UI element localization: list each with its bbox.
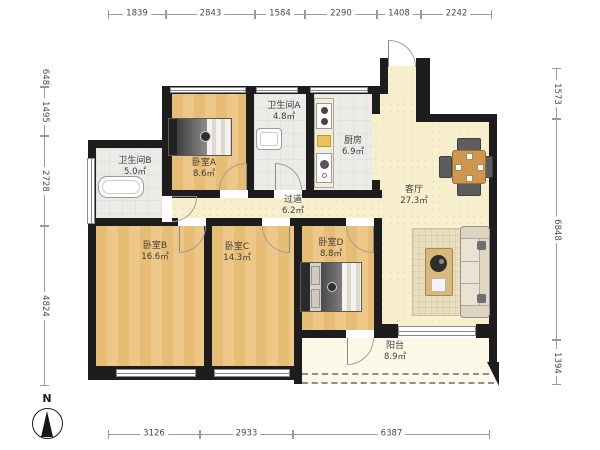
bedroom-d-door-gap [346,218,374,226]
window-bathroom-b [87,158,95,224]
bedroom-c-door-leaf [289,226,290,253]
living-room-floor-west [380,94,416,122]
burner [321,118,328,125]
entry-vestibule-floor [388,66,416,94]
dining-chair-south [457,183,481,196]
stove-icon [316,103,332,129]
bedroom-d-door-leaf [373,226,374,253]
balcony-door-gap [346,330,374,338]
bed-headboard [301,263,310,311]
wall-bedroom-b-c [204,226,212,368]
sofa-seat-line [461,261,479,262]
room-label-bedroom-b: 卧室B 16.6㎡ [141,241,168,262]
plate [455,164,462,171]
bathroom-b-tub [98,176,144,198]
bed-headboard [169,119,177,155]
dim-top-4: 1408 [377,14,421,15]
kitchen-opening-floor [372,114,380,180]
bathroom-a-basin [256,128,282,150]
plant-highlight [439,259,444,264]
kitchen-counter [314,98,334,188]
sofa-seat-line [461,283,479,284]
balcony-dashed-edge-inner [302,373,489,375]
window-bedroom-c [214,369,290,377]
bedroom-c-door-gap [262,218,290,226]
tray-icon [431,278,446,292]
window-balcony-slider [398,326,476,336]
coffee-table [425,248,453,296]
room-label-hallway: 过道 6.2㎡ [282,195,304,216]
window-kitchen [310,87,368,93]
room-label-bathroom-b: 卫生间B 5.0㎡ [118,156,151,177]
plant-icon [430,255,447,272]
dining-chair-west [439,156,452,178]
dim-right-1: 6848 [556,119,557,340]
dim-top-3: 2290 [305,14,377,15]
wall-bedroom-a-bathroom-a [246,86,254,198]
sink-icon [316,153,332,183]
plate [477,164,484,171]
dim-bottom-1: 2933 [200,434,293,435]
wall-bathroom-b-top [88,140,170,148]
bed-pillow [311,266,320,285]
floor-plan: 卫生间B 5.0㎡ 卧室A 8.6㎡ 卫生间A 4.8㎡ 厨房 6.9㎡ 过道 … [0,0,600,450]
wall-bathroom-a-kitchen [306,86,314,198]
room-label-bedroom-a: 卧室A 8.6㎡ [192,158,216,179]
compass: N [24,392,70,446]
dim-top-1: 2843 [166,14,255,15]
bed-sheet [342,263,361,311]
wall-vestibule-right [416,58,430,122]
dim-left-0: 648 [44,66,45,87]
sink-bowl [320,160,329,169]
bed-pillow [311,289,320,308]
wall-balcony-pier-west [374,324,398,338]
counter-item [317,135,331,147]
compass-north-label: N [24,392,70,405]
dim-left-1: 1495 [44,87,45,136]
basin-inner [260,132,278,146]
window-bathroom-a [256,87,298,93]
plate [466,175,473,182]
wall-vestibule-left [380,58,388,94]
dim-top-2: 1584 [255,14,305,15]
wall-hallway-bottom [88,218,382,226]
bathroom-b-door-gap [162,196,172,222]
wall-bedroom-d-east [374,218,382,338]
window-bedroom-a [170,87,246,93]
room-label-bedroom-d: 卧室D 8.8㎡ [319,238,344,259]
bedroom-a-bed [168,118,232,156]
dim-right-2: 1394 [556,340,557,385]
sofa-pillow [477,294,486,303]
sofa-pillow [477,241,486,250]
room-label-bathroom-a: 卫生间A 4.8㎡ [267,101,300,122]
wall-step-top-right [430,114,497,122]
room-label-bedroom-c: 卧室C 14.3㎡ [223,242,250,263]
bedroom-a-door-leaf [246,163,247,190]
sofa [460,226,490,318]
bedroom-a-door-gap [220,190,248,198]
dim-bottom-0: 3126 [108,434,200,435]
entry-door-arc [389,40,416,67]
plate [466,153,473,160]
dim-left-2: 2728 [44,136,45,226]
dim-left-3: 4824 [44,226,45,386]
dim-right-0: 1573 [556,68,557,119]
window-bedroom-b [116,369,196,377]
dim-top-0: 1839 [108,14,166,15]
room-label-kitchen: 厨房 6.9㎡ [342,136,364,157]
bedroom-d-bed [300,262,362,312]
bed-decor-dot [327,282,337,292]
wall-kitchen-east-upper [372,86,380,114]
wall-balcony-pier-east [476,324,489,338]
dim-bottom-2: 6387 [293,434,490,435]
sink-drain [322,173,327,178]
tub-inner [102,180,140,194]
dim-top-5: 2242 [421,14,492,15]
dining-table [452,150,486,184]
burner [321,107,328,114]
bed-decor-dot [200,131,211,142]
room-label-balcony: 阳台 8.9㎡ [384,341,406,362]
sofa-arm-bottom [461,305,489,317]
sofa-arm-top [461,227,489,239]
hallway-floor [172,198,382,218]
balcony-dashed-edge-outer [302,382,494,384]
compass-needle-icon [41,411,53,437]
room-label-living-room: 客厅 27.3㎡ [400,185,427,206]
